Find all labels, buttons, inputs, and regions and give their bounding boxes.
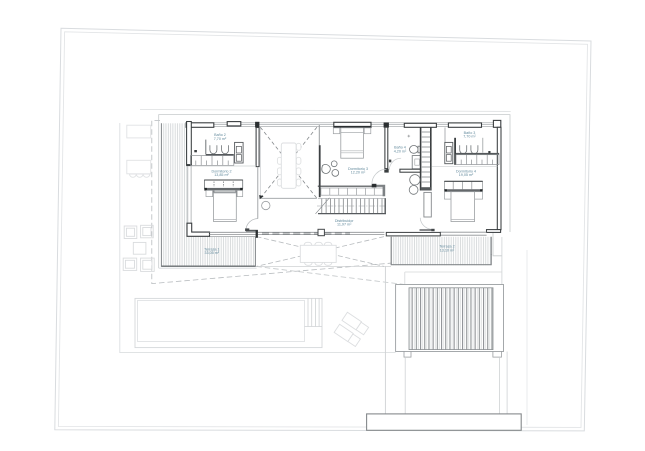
svg-text:12,20 m²: 12,20 m² [351, 171, 366, 175]
svg-text:4,20 m²: 4,20 m² [394, 150, 407, 154]
svg-text:13,85 m²: 13,85 m² [214, 173, 229, 177]
svg-text:19,05 m²: 19,05 m² [459, 173, 474, 177]
svg-text:33,05 m²: 33,05 m² [205, 251, 220, 255]
svg-text:13,10 m²: 13,10 m² [440, 248, 455, 252]
svg-text:11,97 m²: 11,97 m² [337, 223, 352, 227]
svg-text:7,70 m²: 7,70 m² [463, 135, 476, 139]
svg-text:7,70 m²: 7,70 m² [214, 137, 227, 141]
